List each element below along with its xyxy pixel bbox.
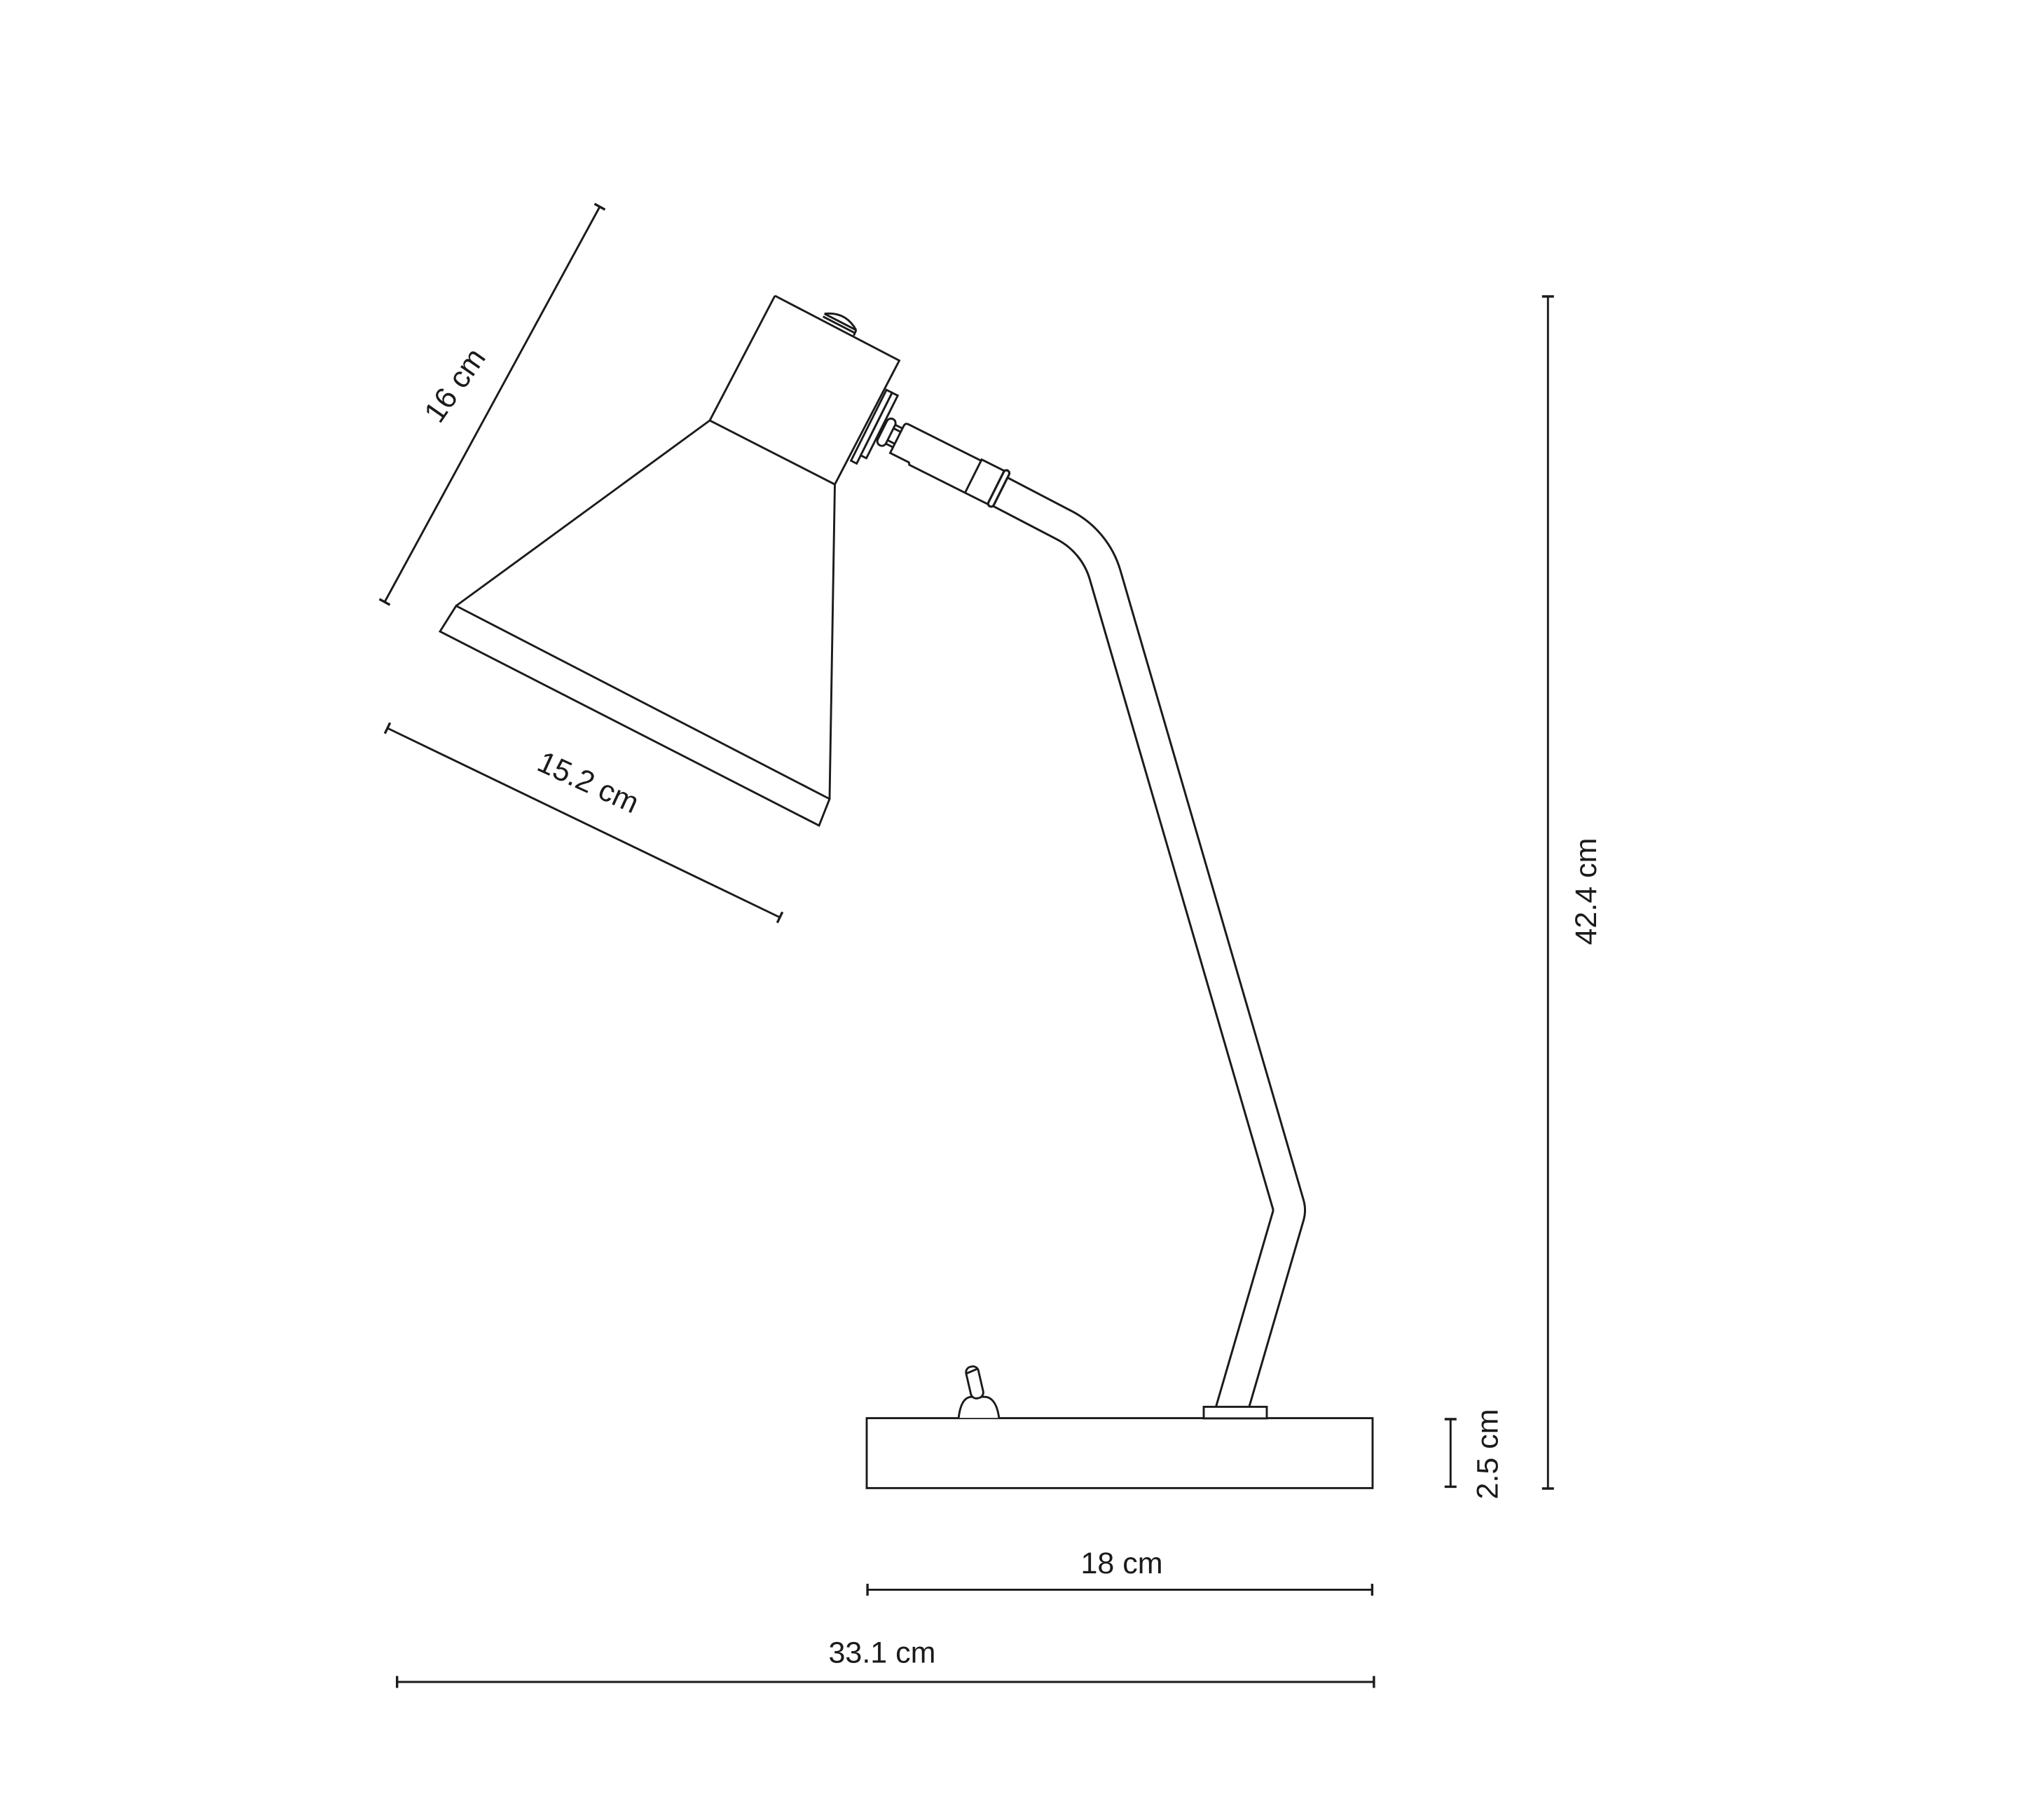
svg-text:42.4 cm: 42.4 cm [1569, 838, 1603, 945]
svg-text:18 cm: 18 cm [1080, 1547, 1162, 1580]
svg-text:33.1 cm: 33.1 cm [829, 1636, 936, 1670]
svg-text:2.5 cm: 2.5 cm [1471, 1409, 1505, 1499]
